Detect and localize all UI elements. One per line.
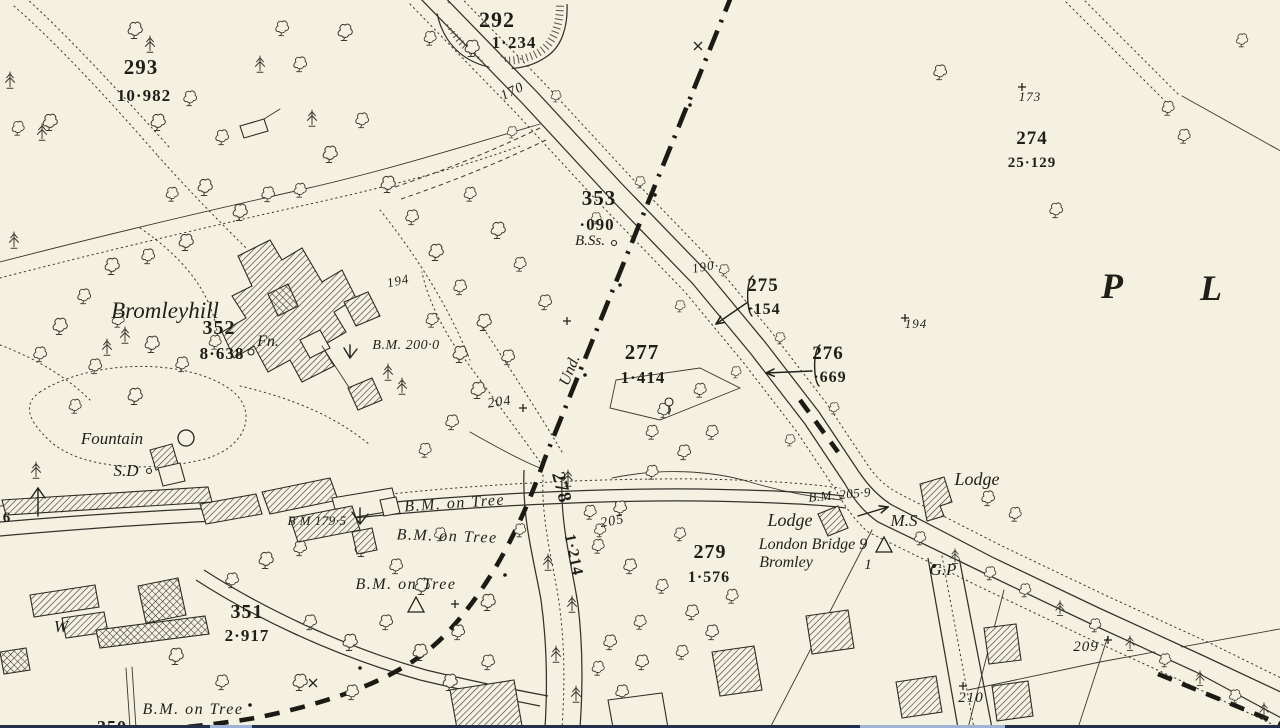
label-lodge-east: Lodge <box>954 469 1000 489</box>
label-parcel-277-area: 1·414 <box>621 368 666 387</box>
label-height-209: 209 <box>1073 639 1099 655</box>
label-height-194-east: 194 <box>905 316 928 331</box>
label-milestone-origin: Bromley <box>759 554 814 571</box>
label-feature-gp: G.P <box>930 560 957 579</box>
label-parcel-353-area: ·090 <box>579 215 614 234</box>
label-parcel-293-number: 293 <box>124 55 159 79</box>
label-feature-w: W <box>54 617 70 636</box>
building-hamlet <box>138 578 186 623</box>
label-parcel-276-area: ·669 <box>813 369 846 386</box>
label-parcel-275-number: 275 <box>747 275 779 296</box>
label-lodge-west: Lodge <box>767 510 813 530</box>
label-parcel-276-number: 276 <box>812 343 844 364</box>
label-bm-179-5: B M 179·5 <box>287 513 346 528</box>
label-parcel-274-number: 274 <box>1016 128 1048 149</box>
fountain-icon <box>178 430 194 446</box>
label-height-210: 210 <box>958 690 984 706</box>
pump-icon <box>665 398 673 406</box>
label-parcel-353-number: 353 <box>582 186 617 210</box>
label-height-173: 173 <box>1019 89 1042 104</box>
label-bench-tree-3: B.M. on Tree <box>356 576 457 593</box>
label-milestone-destination: London Bridge 9 <box>758 536 867 553</box>
label-parcel-351-number: 351 <box>231 601 264 623</box>
label-milestone-miles: 1 <box>864 557 872 573</box>
fn-point-icon <box>248 349 254 355</box>
label-feature-sd: S.D <box>113 461 139 480</box>
label-feature-ms: M.S <box>890 511 918 530</box>
label-feature-fountain: Fountain <box>80 429 143 448</box>
label-parcel-292-area: 1·234 <box>492 33 537 52</box>
boundary-stone-icon <box>612 241 617 246</box>
label-placename-letter-l: L <box>1199 268 1224 308</box>
label-parcel-277-number: 277 <box>625 340 660 364</box>
label-parcel-274-area: 25·129 <box>1008 155 1057 171</box>
label-parcel-279-number: 279 <box>694 541 727 563</box>
label-bench-tree-2: B.M. on Tree <box>396 526 497 547</box>
label-parcel-351-area: 2·917 <box>225 626 270 645</box>
label-bm-200-0: B.M. 200·0 <box>372 338 439 353</box>
label-feature-fn: Fn. <box>256 333 279 350</box>
label-parcel-292-number: 292 <box>479 7 515 32</box>
label-placename-letter-p: P <box>1100 266 1125 306</box>
label-parcel-275-area: ·154 <box>747 301 780 318</box>
label-parcel-352-area: 8·638 <box>200 344 245 363</box>
label-bench-boundary-stones: B.Ss. <box>575 233 605 249</box>
label-bench-tree-4: B.M. on Tree <box>143 701 244 718</box>
label-parcel-293-area: 10·982 <box>117 86 171 105</box>
label-edge-number-6: 6 <box>3 510 12 526</box>
sd-post-icon <box>147 469 152 474</box>
label-parcel-279-area: 1·576 <box>688 569 730 586</box>
label-parcel-352-number: 352 <box>203 317 236 339</box>
map-canvas: 2921·23429310·982170353·090B.Ss.190275·1… <box>0 0 1280 728</box>
